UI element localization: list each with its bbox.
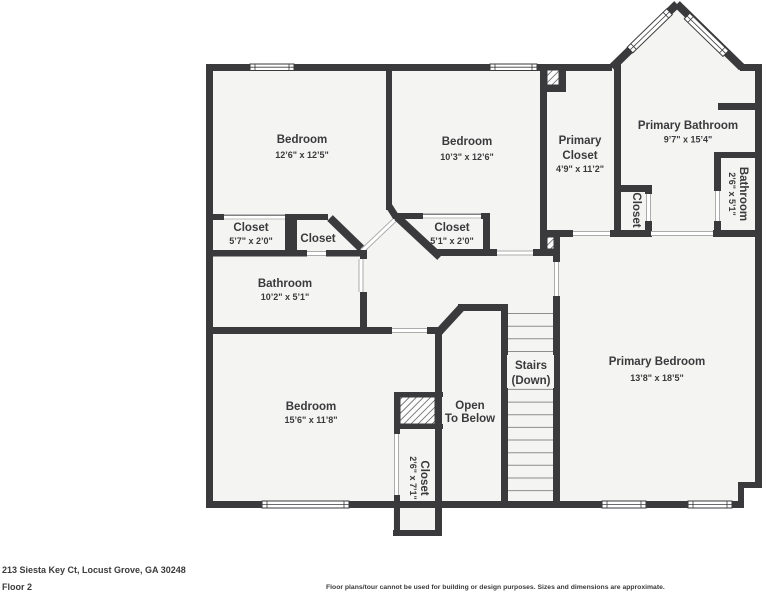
svg-text:15’6" x 11’8": 15’6" x 11’8" (284, 415, 337, 425)
svg-text:Stairs: Stairs (515, 360, 547, 372)
svg-text:To Below: To Below (445, 413, 495, 425)
svg-text:4’9" x 11’2": 4’9" x 11’2" (556, 164, 604, 174)
svg-text:Floor 2: Floor 2 (2, 582, 32, 592)
svg-text:Closet: Closet (562, 150, 597, 162)
svg-text:Primary: Primary (559, 135, 602, 147)
svg-text:Closet: Closet (418, 460, 430, 495)
svg-text:Closet: Closet (300, 233, 335, 245)
svg-text:2’6" x 5’1": 2’6" x 5’1" (727, 172, 737, 216)
svg-text:Bedroom: Bedroom (286, 401, 336, 413)
svg-text:Bathroom: Bathroom (258, 278, 312, 290)
svg-text:Bedroom: Bedroom (277, 134, 327, 146)
svg-text:Primary Bedroom: Primary Bedroom (609, 356, 706, 368)
svg-text:5’7" x 2’0": 5’7" x 2’0" (229, 236, 273, 246)
svg-text:5’1" x 2’0": 5’1" x 2’0" (430, 236, 474, 246)
svg-text:Bathroom: Bathroom (737, 167, 749, 221)
svg-text:Primary Bathroom: Primary Bathroom (638, 120, 738, 132)
svg-text:Closet: Closet (630, 192, 642, 227)
svg-text:Closet: Closet (233, 222, 268, 234)
svg-text:12’6" x 12’5": 12’6" x 12’5" (275, 150, 329, 160)
svg-text:10’2" x 5’1": 10’2" x 5’1" (261, 292, 310, 302)
svg-text:2’6" x 7’1": 2’6" x 7’1" (408, 456, 418, 500)
svg-text:Open: Open (455, 400, 484, 412)
svg-text:Floor plans/tour cannot be use: Floor plans/tour cannot be used for buil… (326, 584, 665, 591)
svg-text:13’8" x 18’5": 13’8" x 18’5" (630, 373, 684, 383)
svg-text:9’7" x 15’4": 9’7" x 15’4" (664, 135, 713, 145)
svg-text:Bedroom: Bedroom (442, 136, 492, 148)
svg-text:(Down): (Down) (512, 375, 551, 387)
svg-text:10’3" x 12’6": 10’3" x 12’6" (440, 152, 494, 162)
svg-text:213 Siesta Key Ct, Locust Grov: 213 Siesta Key Ct, Locust Grove, GA 3024… (2, 565, 186, 575)
svg-text:Closet: Closet (434, 222, 469, 234)
